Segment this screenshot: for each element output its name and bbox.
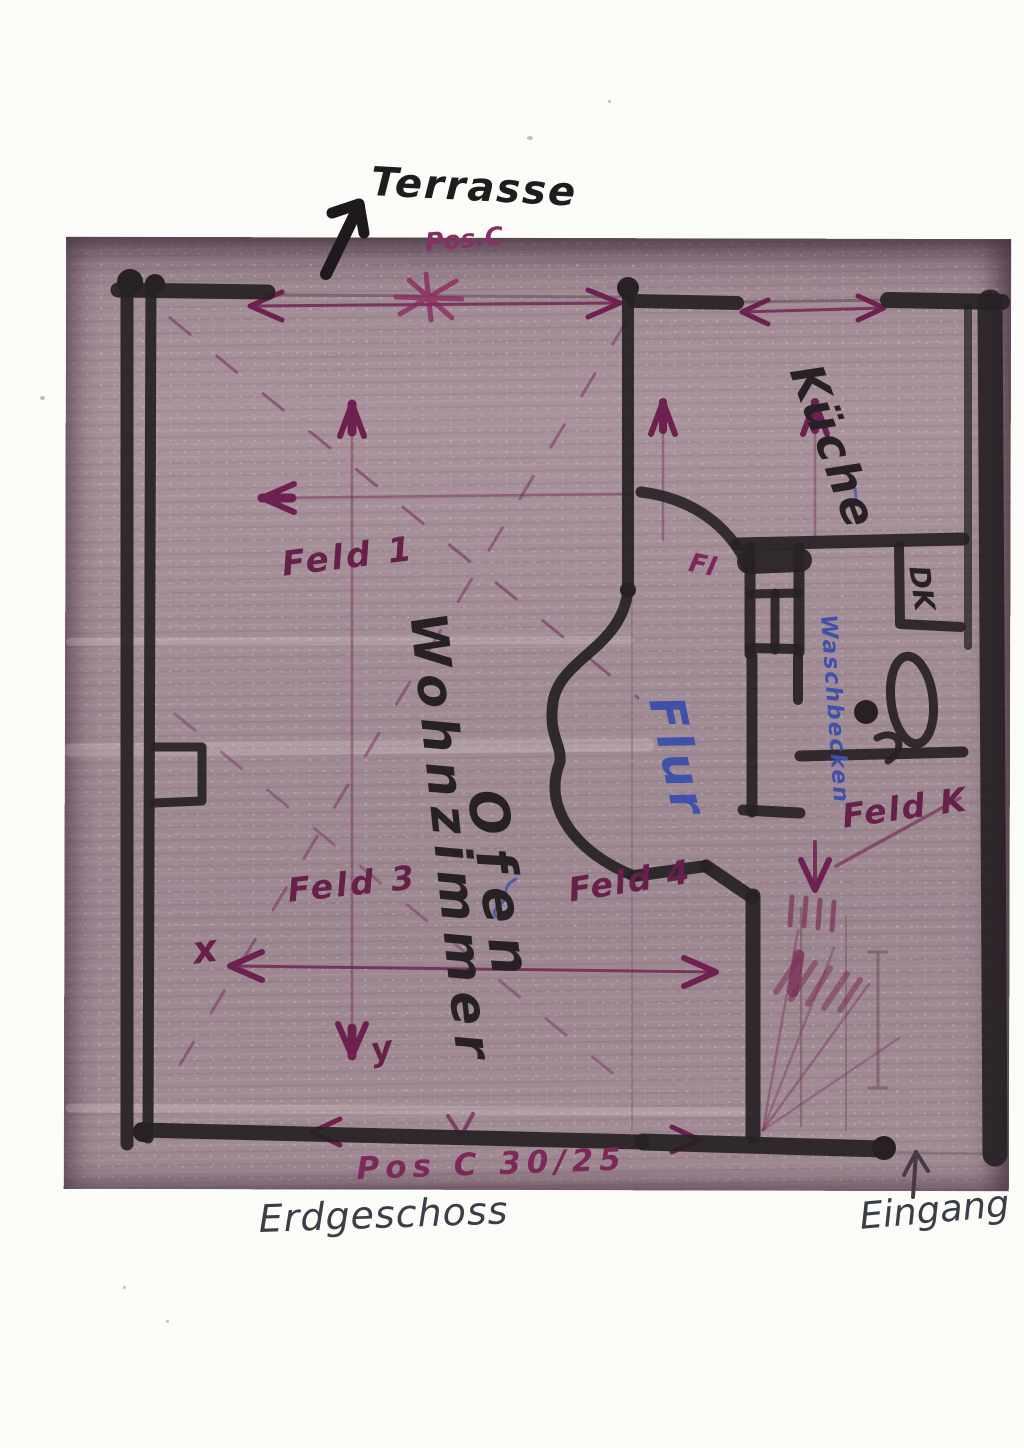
terrasse-arrow [326,204,364,274]
construction-lines [170,295,988,1154]
label-pos-bottom: Pos C 30/25 [356,1145,627,1185]
paper-speck [608,100,611,103]
scanned-page: Terrasse Pos.C Küche Feld 1 Wohnzimmer O… [0,0,1024,1448]
label-erdgeschoss: Erdgeschoss [258,1191,509,1238]
paper-speck [123,1286,126,1289]
label-dk: DK [904,564,938,612]
paper-speck [40,396,45,400]
staircase [763,897,899,1130]
paper-speck [527,136,533,140]
label-axis-x: x [190,929,220,970]
label-fl-abbrev: Fl [687,550,719,581]
paper-speck [166,1320,169,1323]
label-terrasse: Terrasse [370,162,578,213]
label-pos-top: Pos.C [424,223,504,255]
